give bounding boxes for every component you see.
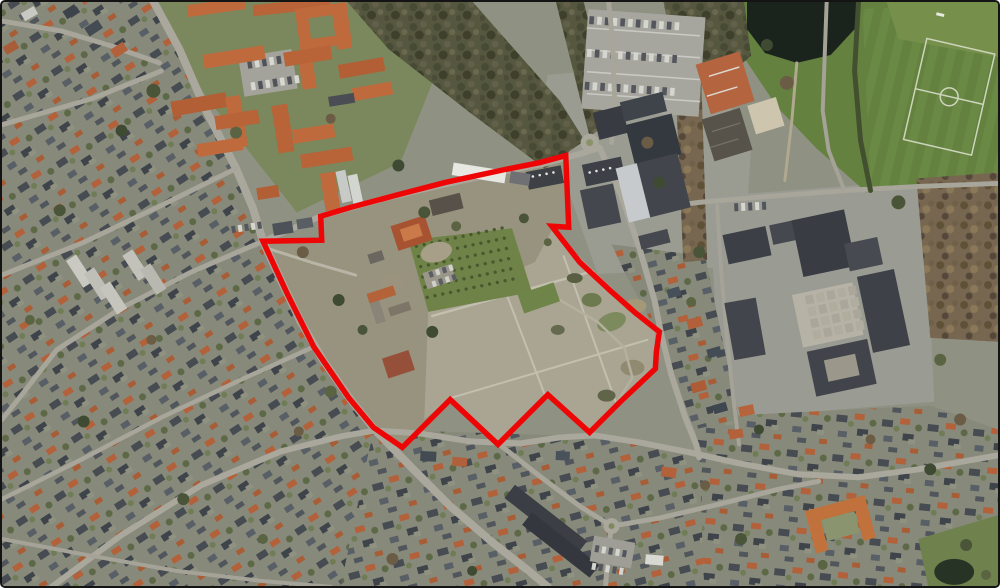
shrub xyxy=(551,325,565,335)
pond-small xyxy=(934,559,974,585)
roundabout-center xyxy=(609,523,615,529)
house xyxy=(452,457,468,467)
building xyxy=(645,554,664,565)
house xyxy=(420,451,436,462)
woodland-east xyxy=(916,172,998,341)
shrub xyxy=(598,390,616,402)
school-loop-center xyxy=(586,139,593,146)
aerial-map xyxy=(0,0,1000,588)
aerial-photo xyxy=(2,2,998,586)
house xyxy=(556,451,570,461)
map-features xyxy=(2,2,998,586)
shrub xyxy=(567,273,583,283)
house xyxy=(661,466,677,478)
scrub xyxy=(582,293,602,307)
